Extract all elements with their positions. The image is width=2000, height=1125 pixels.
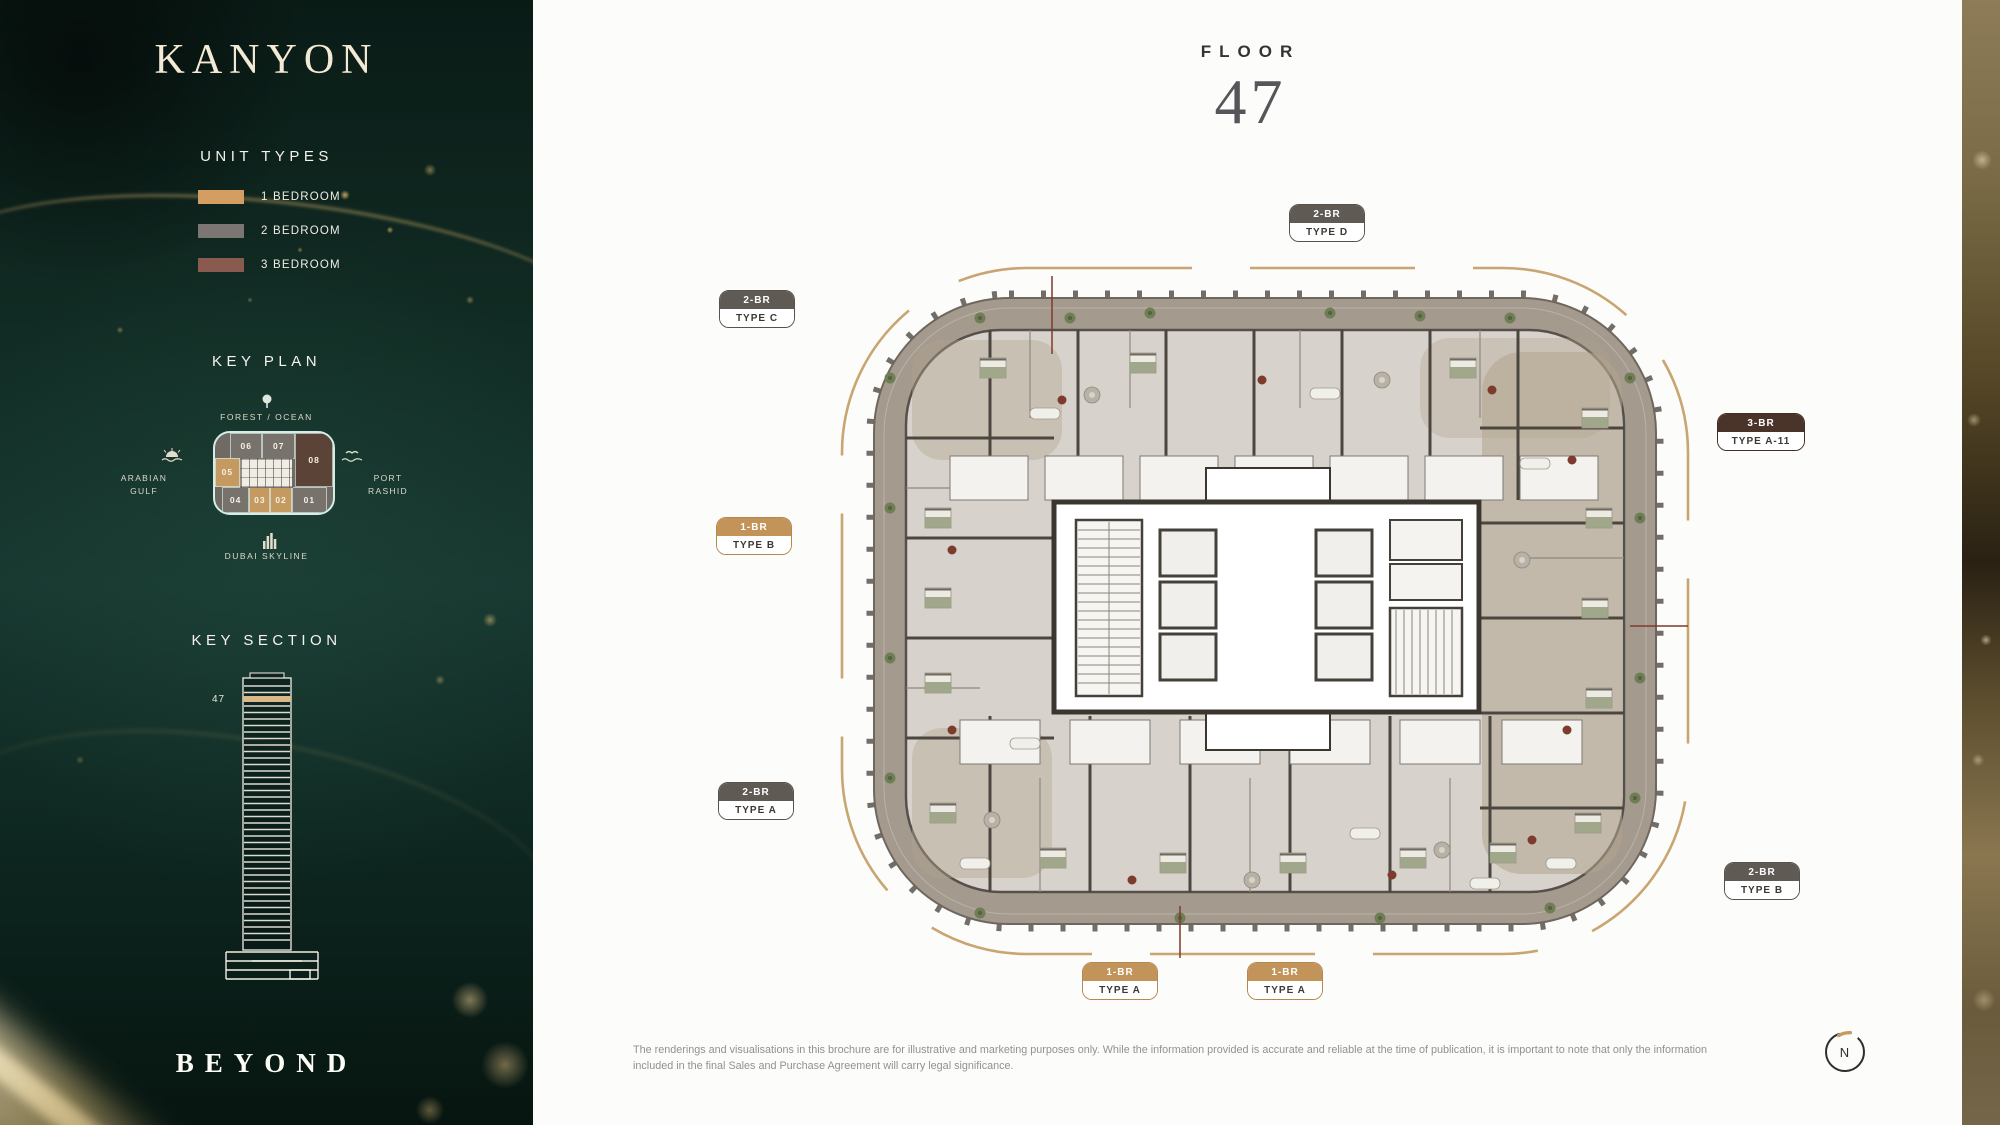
tower-floor-47-band	[243, 696, 291, 702]
key-plan-unit-05: 05	[215, 458, 240, 487]
key-plan-unit-07-label: 07	[273, 441, 284, 451]
unit-badge-2br-type-d: 2-BR TYPE D	[1289, 204, 1365, 242]
legend-swatch-2br	[198, 224, 244, 238]
tree-icon	[259, 393, 275, 414]
bird-waves-icon	[340, 448, 364, 469]
unit-types-legend: 1 BEDROOM 2 BEDROOM 3 BEDROOM	[198, 186, 341, 288]
key-plan-unit-08-label: 08	[308, 455, 319, 465]
key-section-tower: 47	[212, 672, 332, 986]
legend-swatch-1br	[198, 190, 244, 204]
key-plan-unit-04-label: 04	[230, 495, 241, 505]
unit-badge-2br-type-a-br: 2-BR	[719, 783, 793, 801]
key-plan-unit-06: 06	[230, 433, 262, 459]
unit-badge-1br-type-a-left: 1-BR TYPE A	[1082, 962, 1158, 1000]
unit-badge-2br-type-a: 2-BR TYPE A	[718, 782, 794, 820]
floor-number: 47	[1128, 70, 1373, 134]
unit-badge-2br-type-b: 2-BR TYPE B	[1724, 862, 1800, 900]
legend-label-1br: 1 BEDROOM	[261, 191, 341, 203]
key-plan-unit-07: 07	[262, 433, 295, 459]
floor-label: FLOOR	[1128, 42, 1373, 62]
unit-badge-2br-type-b-br: 2-BR	[1725, 863, 1799, 881]
unit-badge-1br-type-a-left-type: TYPE A	[1083, 981, 1157, 999]
right-edge-image	[1962, 0, 2000, 1125]
compass-north-label: N	[1822, 1029, 1868, 1075]
legend-label-3br: 3 BEDROOM	[261, 259, 341, 271]
unit-badge-1br-type-a-right-type: TYPE A	[1248, 981, 1322, 999]
unit-badge-1br-type-b-type: TYPE B	[717, 536, 791, 554]
legend-row-2br: 2 BEDROOM	[198, 220, 341, 242]
floor-plan	[830, 258, 1700, 964]
key-plan-diagram: 06 07 05 08 04 03 02 01	[213, 431, 335, 515]
compass: N	[1822, 1029, 1868, 1075]
key-plan-label-left: ARABIAN GULF	[108, 472, 180, 498]
unit-badge-1br-type-b: 1-BR TYPE B	[716, 517, 792, 555]
key-plan-label-top: FOREST / OCEAN	[0, 412, 533, 422]
key-plan-core	[240, 458, 293, 488]
unit-badge-3br-type-a11: 3-BR TYPE A-11	[1717, 413, 1805, 451]
unit-badge-2br-type-d-br: 2-BR	[1290, 205, 1364, 223]
key-plan-unit-04: 04	[222, 487, 249, 513]
unit-badge-2br-type-c-br: 2-BR	[720, 291, 794, 309]
tower-graphic	[212, 672, 332, 986]
floor-plan-graphic	[830, 258, 1700, 964]
key-plan-unit-03-label: 03	[254, 495, 265, 505]
key-plan-label-bottom: DUBAI SKYLINE	[0, 551, 533, 561]
unit-badge-2br-type-b-type: TYPE B	[1725, 881, 1799, 899]
unit-badge-1br-type-a-left-br: 1-BR	[1083, 963, 1157, 981]
legend-row-1br: 1 BEDROOM	[198, 186, 341, 208]
key-plan-unit-02: 02	[270, 487, 291, 513]
unit-badge-2br-type-a-type: TYPE A	[719, 801, 793, 819]
unit-badge-1br-type-b-br: 1-BR	[717, 518, 791, 536]
unit-badge-1br-type-a-right: 1-BR TYPE A	[1247, 962, 1323, 1000]
unit-badge-1br-type-a-right-br: 1-BR	[1248, 963, 1322, 981]
developer-brand: BEYOND	[0, 1048, 533, 1079]
brand-logo: KANYON	[0, 36, 533, 84]
legend-row-3br: 3 BEDROOM	[198, 254, 341, 276]
key-plan-unit-05-label: 05	[222, 467, 233, 477]
unit-types-heading: UNIT TYPES	[0, 148, 533, 165]
disclaimer-text: The renderings and visualisations in thi…	[633, 1042, 1745, 1074]
sidebar: KANYON UNIT TYPES 1 BEDROOM 2 BEDROOM 3 …	[0, 0, 533, 1125]
key-plan-label-right: PORT RASHID	[352, 472, 424, 498]
key-plan-unit-02-label: 02	[275, 495, 286, 505]
legend-swatch-3br	[198, 258, 244, 272]
key-plan-unit-08: 08	[295, 433, 333, 487]
unit-badge-3br-type-a11-type: TYPE A-11	[1718, 432, 1804, 450]
floor-header: FLOOR 47	[1128, 42, 1373, 134]
unit-badge-2br-type-d-type: TYPE D	[1290, 223, 1364, 241]
key-plan-unit-01: 01	[292, 487, 327, 513]
unit-badge-2br-type-c-type: TYPE C	[720, 309, 794, 327]
unit-badge-3br-type-a11-br: 3-BR	[1718, 414, 1804, 432]
brochure-page: KANYON UNIT TYPES 1 BEDROOM 2 BEDROOM 3 …	[0, 0, 2000, 1125]
key-section-heading: KEY SECTION	[0, 632, 533, 649]
unit-badge-2br-type-c: 2-BR TYPE C	[719, 290, 795, 328]
key-plan-heading: KEY PLAN	[0, 353, 533, 370]
key-plan-unit-01-label: 01	[304, 495, 315, 505]
legend-label-2br: 2 BEDROOM	[261, 225, 341, 237]
key-plan-unit-03: 03	[249, 487, 270, 513]
tower-floor-marker: 47	[212, 694, 225, 705]
sun-waves-icon	[160, 448, 184, 469]
key-plan-unit-06-label: 06	[241, 441, 252, 451]
